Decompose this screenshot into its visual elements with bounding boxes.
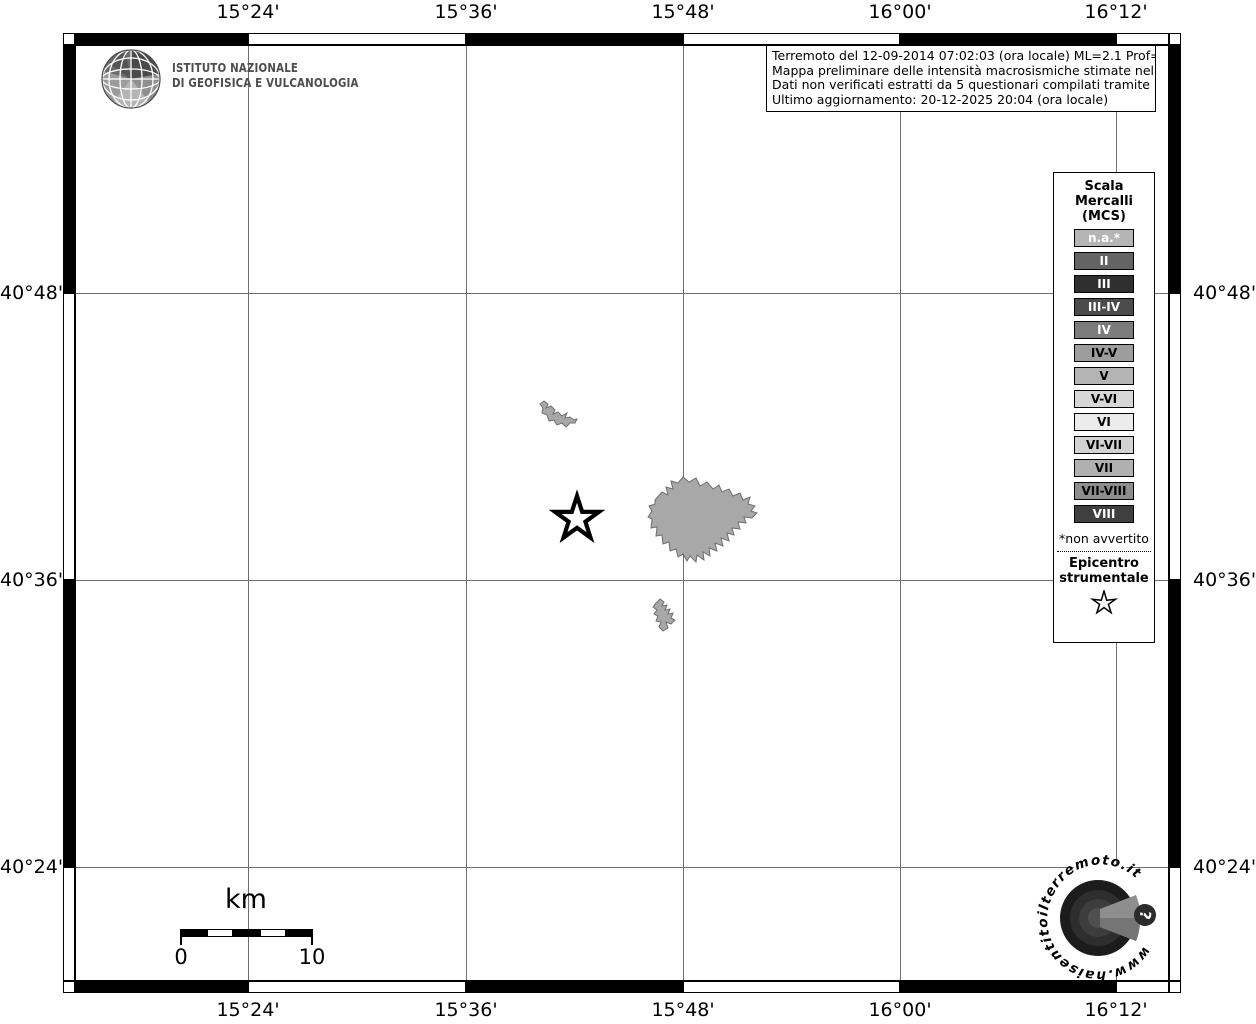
- legend-title-line3: (MCS): [1054, 209, 1154, 224]
- haisentitoilterremoto-logo: ? www.haisentitoilterremoto.it: [1030, 848, 1170, 988]
- axis-label-right: 40°48': [1193, 282, 1256, 304]
- grid-line-vertical: [900, 45, 901, 981]
- frame-segment-top: [248, 33, 466, 45]
- grid-line-vertical: [466, 45, 467, 981]
- legend-item-iii: III: [1074, 275, 1134, 293]
- info-line-data-source: Dati non verificati estratti da 5 questi…: [772, 78, 1150, 93]
- legend-title: Scala Mercalli (MCS): [1054, 179, 1154, 224]
- epicenter-legend-star-icon: [1090, 590, 1118, 618]
- epicenter-label-line1: Epicentro: [1054, 556, 1154, 571]
- frame-segment-left: [63, 293, 75, 580]
- frame-corner-square: [1169, 33, 1181, 45]
- ingv-name-line2: DI GEOFISICA E VULCANOLOGIA: [172, 76, 359, 91]
- ingv-name: ISTITUTO NAZIONALE DI GEOFISICA E VULCAN…: [172, 61, 359, 90]
- legend-item-viii: VIII: [1074, 505, 1134, 523]
- intensity-map-page: 15°24'15°36'15°48'16°00'16°12'15°24'15°3…: [0, 0, 1256, 1024]
- scalebar-segment: [233, 929, 259, 937]
- scalebar-segment: [286, 929, 312, 937]
- legend-item-v-vi: V-VI: [1074, 390, 1134, 408]
- frame-segment-right: [1169, 293, 1181, 580]
- axis-label-bottom: 16°00': [868, 999, 931, 1021]
- legend-item-iv-v: IV-V: [1074, 344, 1134, 362]
- legend-items: n.a.*IIIIIIII-IVIVIV-VVV-VIVIVI-VIIVIIVI…: [1054, 229, 1154, 523]
- ingv-name-line1: ISTITUTO NAZIONALE: [172, 61, 359, 76]
- legend-title-line1: Scala: [1054, 179, 1154, 194]
- axis-label-top: 16°12': [1084, 1, 1147, 23]
- axis-label-right: 40°24': [1193, 856, 1256, 878]
- locality-polygon-northwest: [540, 401, 577, 427]
- legend-item-n-a-: n.a.*: [1074, 229, 1134, 247]
- frame-segment-bottom: [683, 981, 900, 993]
- axis-label-left: 40°24': [0, 856, 58, 878]
- legend-divider: [1057, 551, 1151, 552]
- scalebar-tick-end: [311, 929, 313, 945]
- frame-segment-right: [1169, 580, 1181, 867]
- frame-segment-top: [1116, 33, 1169, 45]
- map-border: [75, 45, 1169, 981]
- axis-label-right: 40°36': [1193, 569, 1256, 591]
- axis-label-top: 16°00': [868, 1, 931, 23]
- epicenter-label-line2: strumentale: [1054, 571, 1154, 586]
- frame-segment-bottom: [75, 981, 248, 993]
- frame-corner-square: [63, 33, 75, 45]
- legend-item-iii-iv: III-IV: [1074, 298, 1134, 316]
- legend-item-vii: VII: [1074, 459, 1134, 477]
- earthquake-info-box: Terremoto del 12-09-2014 07:02:03 (ora l…: [766, 45, 1156, 112]
- frame-segment-left: [63, 580, 75, 867]
- scalebar-segment: [260, 929, 286, 937]
- frame-segment-top: [683, 33, 900, 45]
- axis-label-bottom: 16°12': [1084, 999, 1147, 1021]
- info-line-event: Terremoto del 12-09-2014 07:02:03 (ora l…: [772, 49, 1150, 64]
- frame-segment-bottom: [466, 981, 683, 993]
- frame-segment-bottom: [248, 981, 466, 993]
- axis-label-left: 40°36': [0, 569, 58, 591]
- info-line-updated: Ultimo aggiornamento: 20-12-2025 20:04 (…: [772, 93, 1150, 108]
- grid-line-vertical: [248, 45, 249, 981]
- frame-segment-right: [1169, 867, 1181, 981]
- axis-label-bottom: 15°48': [651, 999, 714, 1021]
- axis-label-left: 40°48': [0, 282, 58, 304]
- axis-label-bottom: 15°24': [216, 999, 279, 1021]
- legend-item-vi: VI: [1074, 413, 1134, 431]
- axis-label-top: 15°24': [216, 1, 279, 23]
- legend-item-vi-vii: VI-VII: [1074, 436, 1134, 454]
- frame-segment-right: [1169, 45, 1181, 293]
- legend-footnote: *non avvertito: [1054, 531, 1154, 546]
- ingv-globe-icon: [99, 47, 163, 111]
- scalebar-segment: [207, 929, 233, 937]
- legend-title-line2: Mercalli: [1054, 194, 1154, 209]
- frame-corner-square: [1169, 981, 1181, 993]
- scalebar-tick-start: [180, 929, 182, 945]
- grid-line-horizontal: [75, 293, 1169, 294]
- epicenter-star: [555, 496, 599, 538]
- legend-item-v: V: [1074, 367, 1134, 385]
- info-line-map-type: Mappa preliminare delle intensità macros…: [772, 64, 1150, 79]
- frame-corner-square: [63, 981, 75, 993]
- locality-polygon-south: [653, 599, 675, 631]
- scalebar-segment: [181, 929, 207, 937]
- axis-label-top: 15°36': [434, 1, 497, 23]
- axis-label-bottom: 15°36': [434, 999, 497, 1021]
- epicenter-legend-label: Epicentro strumentale: [1054, 556, 1154, 586]
- frame-segment-top: [900, 33, 1116, 45]
- frame-segment-left: [63, 45, 75, 293]
- scalebar-unit-label: km: [216, 884, 276, 915]
- grid-line-horizontal: [75, 867, 1169, 868]
- mercalli-legend: Scala Mercalli (MCS) n.a.*IIIIIIII-IVIVI…: [1053, 172, 1155, 643]
- frame-segment-left: [63, 867, 75, 981]
- legend-item-ii: II: [1074, 252, 1134, 270]
- scalebar-end-label: 10: [299, 945, 326, 969]
- locality-polygon-main: [648, 477, 757, 562]
- scalebar: [181, 929, 312, 937]
- legend-item-iv: IV: [1074, 321, 1134, 339]
- axis-label-top: 15°48': [651, 1, 714, 23]
- grid-line-horizontal: [75, 580, 1169, 581]
- scalebar-start-label: 0: [174, 945, 187, 969]
- legend-item-vii-viii: VII-VIII: [1074, 482, 1134, 500]
- frame-segment-top: [75, 33, 248, 45]
- grid-line-vertical: [683, 45, 684, 981]
- frame-segment-top: [466, 33, 683, 45]
